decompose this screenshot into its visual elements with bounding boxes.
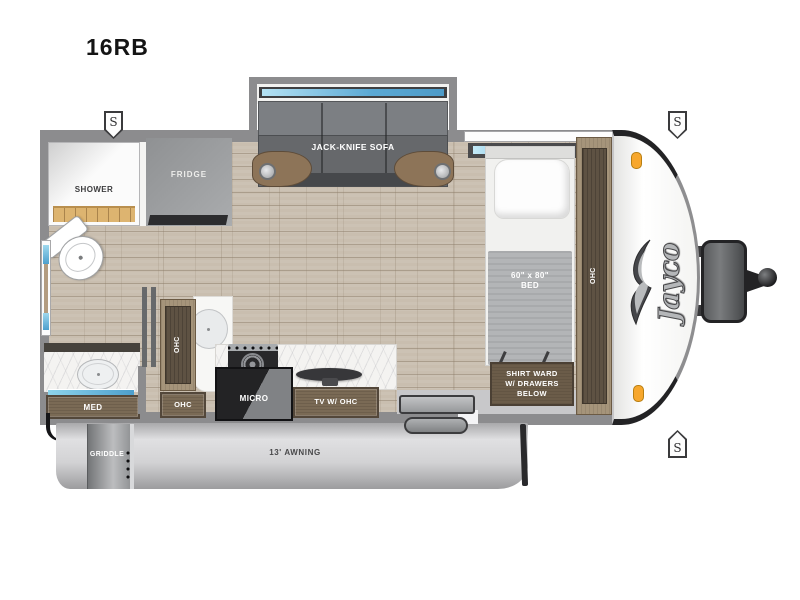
bath-sink-drain	[97, 373, 100, 376]
bed-headboard	[486, 147, 574, 159]
hitch-ball-icon	[758, 268, 777, 287]
sofa-label: JACK-KNIFE SOFA	[249, 143, 457, 153]
awning-label: 13' AWNING	[245, 448, 345, 457]
rear-window-glass-bottom	[43, 313, 49, 330]
slideout-wall-right	[449, 77, 457, 138]
shower: SHOWER	[48, 142, 140, 226]
bed-pillow	[494, 159, 570, 219]
tv-ohc-label: TV W/ OHC	[295, 398, 377, 407]
sofa-end-table-right	[394, 151, 454, 187]
shirt-ward-line3: BELOW	[492, 390, 572, 399]
page-title: 16RB	[86, 34, 149, 61]
cup-holder-icon	[259, 163, 276, 180]
wardrobe-ohc-label: OHC	[577, 138, 611, 414]
med-cabinet: MED	[46, 395, 140, 419]
shirt-ward-line1: SHIRT WARD	[492, 370, 572, 379]
griddle-label: GRIDDLE	[88, 451, 126, 459]
jayco-bird-icon	[622, 236, 654, 328]
brand-logo: Jayco	[652, 208, 686, 358]
floorplan-canvas: 16RB JACK-KNIFE SOFA SHOWER FRID	[0, 0, 800, 600]
bath-partition-wall	[138, 366, 146, 414]
bath-pocket-door-track	[151, 287, 156, 367]
slideout-window-glass	[262, 89, 444, 96]
marker-light-icon	[631, 152, 642, 169]
slideout-sofa-box: JACK-KNIFE SOFA	[249, 77, 457, 187]
ohc-tall-cabinet: OHC	[160, 299, 196, 391]
rear-window-glass-top	[43, 245, 49, 264]
speaker-marker: S	[104, 111, 123, 139]
fridge-label: FRIDGE	[146, 170, 232, 179]
fridge: FRIDGE	[146, 138, 232, 226]
ohc-drawer: OHC	[160, 392, 206, 418]
bed-blanket	[488, 251, 572, 365]
bed: 60" x 80" BED	[485, 146, 575, 366]
tv-ohc-cabinet: TV W/ OHC	[293, 387, 379, 418]
entry-step-upper	[399, 395, 475, 414]
front-cap: Jayco	[612, 130, 700, 425]
sofa-back	[258, 101, 448, 139]
ohc-drawer-label: OHC	[162, 401, 204, 410]
fridge-base-strip	[148, 215, 228, 225]
ohc-tall-label: OHC	[161, 300, 195, 390]
griddle: GRIDDLE	[87, 424, 134, 489]
griddle-hinge-dots	[125, 449, 131, 483]
shirt-ward-line2: W/ DRAWERS	[492, 380, 572, 389]
bed-size-label: 60" x 80"	[486, 271, 574, 280]
bed-label: BED	[486, 281, 574, 290]
bedroom-wardrobe-ohc: OHC	[576, 137, 612, 415]
bath-sink-icon	[77, 359, 119, 390]
bath-pocket-door	[142, 287, 147, 367]
speaker-marker: S	[668, 430, 687, 458]
med-label: MED	[48, 403, 138, 412]
marker-light-icon	[633, 385, 644, 402]
rear-window	[41, 240, 51, 336]
micro-label: MICRO	[217, 394, 291, 403]
propane-tank-cover	[701, 240, 747, 323]
rear-window-mullion	[44, 264, 48, 313]
entry-step-lower	[404, 417, 468, 434]
microwave: MICRO	[215, 367, 293, 421]
kitchen-sink-drain	[207, 328, 210, 331]
tv-stand	[322, 378, 338, 386]
speaker-marker: S	[668, 111, 687, 139]
shirt-wardrobe: SHIRT WARD W/ DRAWERS BELOW	[490, 362, 574, 406]
slideout-wall-left	[249, 77, 257, 138]
shower-label: SHOWER	[49, 185, 139, 194]
cup-holder-icon	[434, 163, 451, 180]
vanity-counter	[44, 352, 140, 392]
